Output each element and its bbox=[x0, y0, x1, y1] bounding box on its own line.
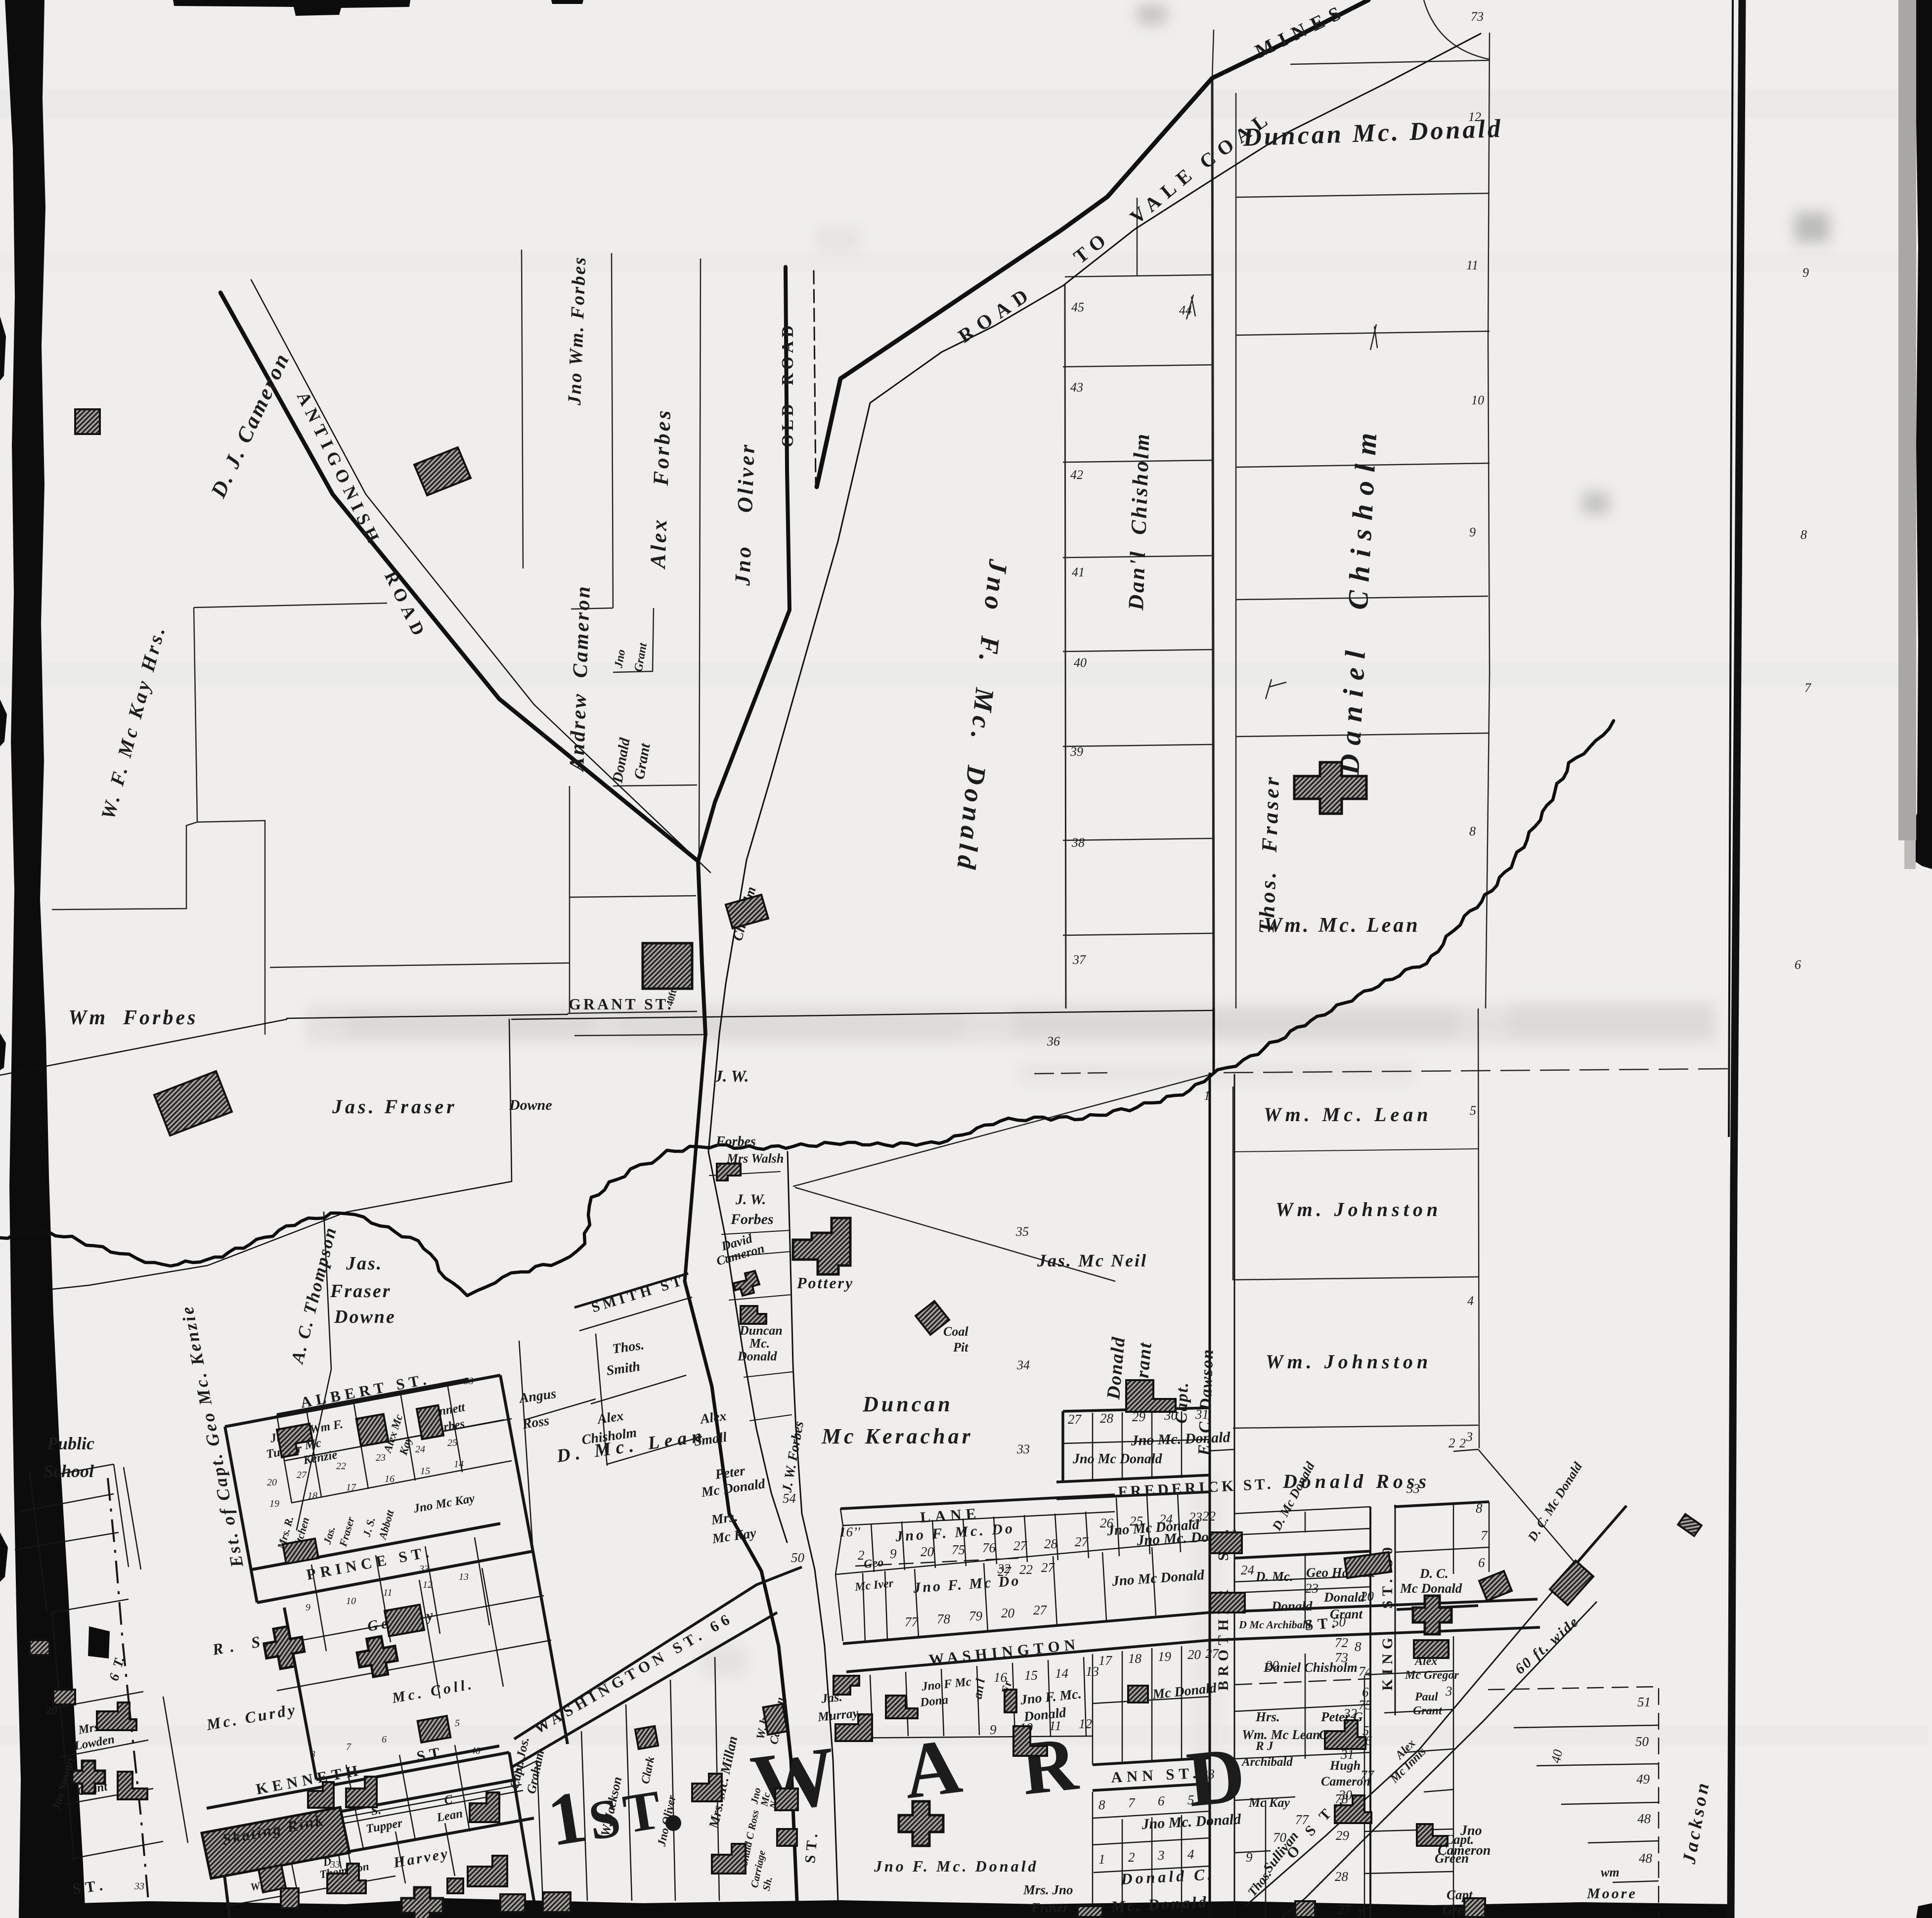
svg-text:48: 48 bbox=[1639, 1851, 1653, 1866]
svg-text:Wm. Johnston: Wm. Johnston bbox=[1275, 1198, 1442, 1221]
svg-text:40: 40 bbox=[1074, 655, 1087, 670]
svg-text:20: 20 bbox=[45, 1704, 57, 1717]
svg-text:77: 77 bbox=[905, 1614, 919, 1629]
svg-text:44: 44 bbox=[1179, 303, 1192, 317]
svg-text:20: 20 bbox=[1001, 1606, 1015, 1620]
svg-text:8: 8 bbox=[1098, 1797, 1105, 1812]
svg-text:50: 50 bbox=[1635, 1734, 1649, 1749]
svg-text:5: 5 bbox=[1362, 1723, 1369, 1738]
svg-text:OLD ROAD: OLD ROAD bbox=[779, 322, 797, 447]
svg-text:Capt.: Capt. bbox=[1445, 1832, 1474, 1847]
svg-text:7: 7 bbox=[1481, 1528, 1488, 1543]
svg-text:Grant: Grant bbox=[1413, 1704, 1443, 1717]
svg-text:Coal: Coal bbox=[943, 1324, 968, 1339]
svg-text:9: 9 bbox=[990, 1722, 997, 1737]
svg-text:6: 6 bbox=[1362, 1685, 1369, 1700]
svg-text:7: 7 bbox=[346, 1742, 351, 1752]
svg-text:74: 74 bbox=[1359, 1664, 1372, 1679]
svg-text:72: 72 bbox=[1335, 1635, 1348, 1650]
svg-text:Fraser: Fraser bbox=[1031, 1900, 1069, 1915]
svg-text:10: 10 bbox=[346, 1596, 356, 1607]
svg-text:2: 2 bbox=[1128, 1850, 1135, 1865]
svg-text:6: 6 bbox=[382, 1734, 387, 1745]
svg-text:12: 12 bbox=[1468, 110, 1481, 124]
svg-text:Wm Forbes: Wm Forbes bbox=[68, 1006, 198, 1029]
svg-text:Pit: Pit bbox=[953, 1340, 968, 1354]
svg-text:6: 6 bbox=[1478, 1555, 1485, 1570]
svg-text:9: 9 bbox=[306, 1602, 310, 1613]
svg-text:2: 2 bbox=[1459, 1436, 1466, 1450]
svg-text:24: 24 bbox=[1241, 1563, 1254, 1577]
svg-text:37: 37 bbox=[1072, 953, 1086, 967]
svg-text:16’′: 16’′ bbox=[839, 1525, 861, 1539]
svg-text:27: 27 bbox=[1013, 1538, 1028, 1553]
svg-text:10: 10 bbox=[1471, 393, 1484, 407]
svg-text:33: 33 bbox=[1016, 1442, 1030, 1456]
svg-text:Mc Donald: Mc Donald bbox=[1400, 1581, 1462, 1596]
svg-text:2: 2 bbox=[1449, 1436, 1455, 1450]
svg-text:Grant: Grant bbox=[1330, 1607, 1363, 1621]
svg-text:45: 45 bbox=[1071, 300, 1084, 314]
svg-text:41: 41 bbox=[1072, 565, 1085, 579]
svg-text:3: 3 bbox=[1466, 1430, 1473, 1444]
svg-text:17: 17 bbox=[346, 1482, 356, 1493]
svg-text:Wm. Mc. Lean: Wm. Mc. Lean bbox=[1264, 1103, 1432, 1126]
svg-text:Wm. Mc. Lean: Wm. Mc. Lean bbox=[1264, 914, 1420, 937]
svg-text:22: 22 bbox=[1019, 1562, 1033, 1577]
svg-text:Archibald: Archibald bbox=[1241, 1755, 1293, 1769]
svg-text:77: 77 bbox=[1295, 1812, 1310, 1827]
svg-text:54: 54 bbox=[783, 1491, 796, 1506]
svg-text:7: 7 bbox=[1357, 1907, 1364, 1918]
svg-text:36: 36 bbox=[1047, 1034, 1060, 1048]
svg-text:3: 3 bbox=[1445, 1684, 1452, 1699]
svg-text:24: 24 bbox=[415, 1444, 425, 1455]
svg-text:7: 7 bbox=[1128, 1795, 1136, 1810]
svg-text:D: D bbox=[1183, 1730, 1249, 1824]
svg-text:5: 5 bbox=[455, 1718, 460, 1729]
svg-text:A: A bbox=[899, 1721, 966, 1816]
svg-text:27: 27 bbox=[1041, 1560, 1055, 1575]
svg-text:3: 3 bbox=[1157, 1848, 1165, 1863]
svg-text:28: 28 bbox=[1044, 1536, 1058, 1551]
svg-text:8: 8 bbox=[1469, 824, 1476, 838]
svg-text:8: 8 bbox=[1800, 527, 1807, 542]
svg-text:13: 13 bbox=[459, 1571, 469, 1582]
svg-text:Forbes: Forbes bbox=[715, 1134, 756, 1149]
svg-text:Paul: Paul bbox=[1414, 1691, 1438, 1703]
svg-text:39: 39 bbox=[1070, 744, 1083, 759]
svg-text:27: 27 bbox=[1033, 1603, 1048, 1617]
svg-text:Public: Public bbox=[46, 1434, 94, 1453]
svg-text:Moore: Moore bbox=[1586, 1885, 1637, 1902]
svg-text:35: 35 bbox=[1015, 1224, 1029, 1239]
svg-text:1: 1 bbox=[1204, 1089, 1210, 1103]
svg-text:13: 13 bbox=[1086, 1664, 1099, 1679]
svg-text:Duncan: Duncan bbox=[862, 1392, 953, 1416]
svg-text:Jno Mc Donald: Jno Mc Donald bbox=[1072, 1451, 1162, 1467]
svg-text:11: 11 bbox=[383, 1587, 393, 1598]
svg-text:D. Mc.: D. Mc. bbox=[1255, 1569, 1293, 1584]
svg-text:9: 9 bbox=[1246, 1850, 1253, 1865]
svg-text:7: 7 bbox=[1804, 681, 1811, 695]
svg-text:11: 11 bbox=[1466, 258, 1478, 272]
svg-text:73: 73 bbox=[1471, 9, 1484, 24]
svg-text:3: 3 bbox=[310, 1749, 315, 1760]
svg-text:51: 51 bbox=[1637, 1695, 1651, 1709]
svg-text:33: 33 bbox=[463, 1376, 474, 1387]
svg-text:Pottery: Pottery bbox=[796, 1274, 854, 1292]
svg-text:5: 5 bbox=[1470, 1103, 1476, 1118]
svg-text:28: 28 bbox=[1335, 1869, 1349, 1884]
svg-text:Fraser: Fraser bbox=[330, 1281, 392, 1302]
svg-text:6: 6 bbox=[1158, 1793, 1165, 1808]
svg-text:33: 33 bbox=[419, 1564, 429, 1574]
svg-text:30: 30 bbox=[1338, 1787, 1353, 1802]
svg-text:19: 19 bbox=[1158, 1649, 1172, 1664]
svg-text:15: 15 bbox=[420, 1466, 430, 1477]
svg-text:9: 9 bbox=[1469, 525, 1476, 539]
svg-text:8: 8 bbox=[1355, 1639, 1361, 1654]
svg-text:14: 14 bbox=[454, 1459, 464, 1470]
svg-text:29: 29 bbox=[1336, 1828, 1350, 1843]
svg-text:Mc Kerachar: Mc Kerachar bbox=[821, 1424, 973, 1448]
svg-text:Donald: Donald bbox=[1323, 1590, 1365, 1605]
svg-text:23: 23 bbox=[376, 1452, 386, 1463]
svg-text:R J: R J bbox=[1255, 1740, 1274, 1753]
svg-text:Donald: Donald bbox=[737, 1349, 777, 1363]
svg-text:D. C.: D. C. bbox=[1419, 1566, 1449, 1581]
svg-text:27: 27 bbox=[1068, 1412, 1082, 1427]
svg-text:75: 75 bbox=[952, 1542, 965, 1557]
svg-text:27: 27 bbox=[1337, 1902, 1352, 1917]
svg-text:78: 78 bbox=[937, 1612, 951, 1626]
svg-text:16: 16 bbox=[385, 1474, 395, 1484]
svg-text:Wm. Mc Lean: Wm. Mc Lean bbox=[1242, 1727, 1320, 1742]
svg-text:79: 79 bbox=[969, 1609, 983, 1623]
svg-text:42: 42 bbox=[1070, 468, 1083, 482]
svg-text:School: School bbox=[44, 1461, 94, 1481]
svg-text:20: 20 bbox=[1187, 1647, 1201, 1662]
svg-text:33: 33 bbox=[134, 1881, 144, 1892]
svg-text:18: 18 bbox=[307, 1490, 317, 1501]
svg-text:31: 31 bbox=[1195, 1407, 1209, 1422]
svg-text:4: 4 bbox=[1187, 1847, 1194, 1862]
svg-text:Mc Kay: Mc Kay bbox=[1248, 1795, 1290, 1810]
svg-text:Jas. Mc Neil: Jas. Mc Neil bbox=[1037, 1251, 1147, 1270]
svg-text:17: 17 bbox=[1098, 1653, 1113, 1668]
svg-text:49: 49 bbox=[1636, 1772, 1650, 1787]
svg-text:22: 22 bbox=[336, 1461, 346, 1472]
svg-text:Cameron: Cameron bbox=[1321, 1774, 1370, 1788]
svg-text:Jas.: Jas. bbox=[346, 1253, 383, 1274]
svg-text:J. W.: J. W. bbox=[714, 1067, 749, 1086]
svg-text:43: 43 bbox=[1070, 380, 1083, 394]
svg-text:Donald: Donald bbox=[1271, 1599, 1313, 1613]
svg-text:1: 1 bbox=[1098, 1852, 1105, 1867]
svg-text:Wm. Johnston: Wm. Johnston bbox=[1266, 1351, 1432, 1373]
svg-text:50: 50 bbox=[791, 1550, 805, 1565]
svg-text:22: 22 bbox=[1202, 1509, 1216, 1524]
svg-text:Mc.: Mc. bbox=[749, 1336, 770, 1351]
svg-text:40: 40 bbox=[471, 1745, 481, 1756]
svg-text:38: 38 bbox=[1071, 835, 1085, 850]
svg-text:20: 20 bbox=[267, 1477, 277, 1488]
svg-text:Jno Oliver: Jno Oliver bbox=[730, 442, 759, 586]
svg-text:Jno F. Mc. Donald: Jno F. Mc. Donald bbox=[874, 1857, 1038, 1875]
svg-text:48: 48 bbox=[1637, 1811, 1651, 1826]
svg-text:27: 27 bbox=[1075, 1534, 1089, 1549]
svg-text:9: 9 bbox=[890, 1546, 897, 1561]
svg-text:Daniel Chisholm: Daniel Chisholm bbox=[1263, 1660, 1358, 1675]
svg-text:Forbes: Forbes bbox=[730, 1211, 774, 1227]
svg-text:J. W.: J. W. bbox=[735, 1191, 766, 1208]
svg-text:Duncan: Duncan bbox=[739, 1323, 783, 1338]
svg-text:Jas. Fraser: Jas. Fraser bbox=[332, 1095, 457, 1118]
svg-text:Green: Green bbox=[1435, 1851, 1469, 1866]
svg-text:20: 20 bbox=[921, 1544, 934, 1559]
svg-text:ST.: ST. bbox=[802, 1829, 821, 1864]
svg-text:6: 6 bbox=[1795, 958, 1801, 972]
svg-text:27: 27 bbox=[297, 1470, 307, 1481]
svg-text:D Mc Archibald: D Mc Archibald bbox=[1238, 1618, 1312, 1631]
svg-text:Hrs.: Hrs. bbox=[1255, 1709, 1280, 1724]
svg-text:34: 34 bbox=[1016, 1358, 1030, 1372]
svg-text:wm: wm bbox=[1601, 1865, 1620, 1879]
svg-text:18: 18 bbox=[1128, 1651, 1142, 1666]
svg-text:27: 27 bbox=[1205, 1646, 1220, 1661]
svg-text:Mc Gregor: Mc Gregor bbox=[1405, 1669, 1459, 1682]
svg-text:Geo: Geo bbox=[863, 1556, 884, 1571]
svg-text:12: 12 bbox=[423, 1579, 433, 1590]
svg-text:25: 25 bbox=[447, 1438, 457, 1448]
svg-text:9: 9 bbox=[1802, 265, 1809, 280]
svg-text:Hugh: Hugh bbox=[1329, 1758, 1361, 1773]
svg-text:Mrs. Jno: Mrs. Jno bbox=[1023, 1882, 1073, 1897]
svg-text:33: 33 bbox=[1406, 1481, 1420, 1496]
svg-text:Downe: Downe bbox=[334, 1307, 396, 1327]
svg-text:76: 76 bbox=[982, 1540, 996, 1555]
svg-text:Downe: Downe bbox=[509, 1097, 552, 1113]
svg-text:4: 4 bbox=[1467, 1294, 1474, 1308]
svg-text:28: 28 bbox=[1100, 1411, 1114, 1426]
svg-text:8: 8 bbox=[1476, 1501, 1483, 1516]
svg-text:GRANT ST.: GRANT ST. bbox=[569, 995, 674, 1013]
svg-text:19: 19 bbox=[269, 1498, 279, 1509]
svg-text:23: 23 bbox=[1305, 1581, 1318, 1596]
svg-text:W: W bbox=[746, 1729, 841, 1831]
svg-text:15: 15 bbox=[1024, 1668, 1038, 1683]
svg-text:14: 14 bbox=[1055, 1666, 1068, 1681]
svg-text:12: 12 bbox=[1079, 1716, 1092, 1731]
